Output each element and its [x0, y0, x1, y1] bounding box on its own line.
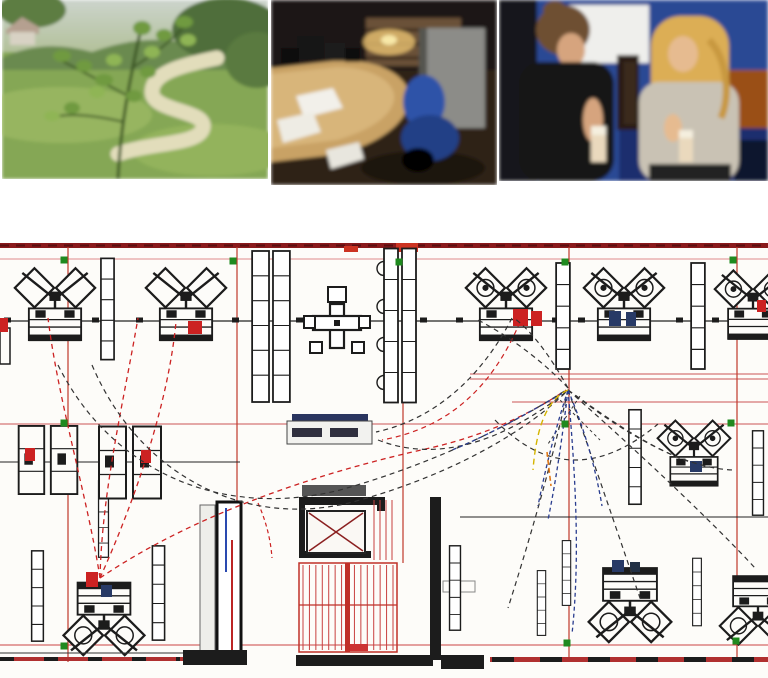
cabinet-bank — [450, 546, 461, 630]
spine-tick — [92, 318, 99, 323]
label-bar — [292, 414, 368, 421]
cable-red — [258, 503, 272, 558]
cable-chase — [217, 502, 241, 660]
cable-navy — [548, 390, 568, 520]
green-marker — [730, 257, 737, 264]
monitor — [297, 36, 324, 59]
red-mark — [350, 644, 368, 651]
spine-tick — [420, 318, 427, 323]
green-marker — [564, 640, 571, 647]
cabinet-bank — [32, 551, 44, 641]
bottom-wall — [441, 655, 484, 669]
green-marker — [396, 259, 403, 266]
red-symbol — [25, 448, 35, 461]
spine-tick — [712, 318, 719, 323]
spine-tick — [232, 318, 239, 323]
landscape-art — [2, 0, 268, 179]
green-marker — [61, 257, 68, 264]
cabinet-bank — [753, 431, 764, 515]
green-marker — [562, 421, 569, 428]
navy-symbol — [609, 311, 621, 326]
elevator-wall — [299, 497, 305, 557]
stair-stringer — [345, 563, 350, 652]
bottom-wall — [296, 655, 433, 666]
office-interior-photo — [271, 0, 497, 185]
cabinet-bank — [537, 571, 545, 636]
red-symbol — [531, 311, 542, 326]
floor-plan — [0, 243, 768, 678]
meeting-table — [304, 287, 370, 353]
workstation-cluster — [146, 268, 226, 341]
spine-tick — [296, 318, 303, 323]
cabinet-bank — [556, 263, 570, 369]
monitor — [325, 43, 345, 61]
spine-tick — [456, 318, 463, 323]
cabinet-bank — [691, 263, 705, 369]
spine-tick — [578, 318, 585, 323]
cabinet-bank — [629, 410, 641, 505]
cabinet-bank — [101, 258, 114, 359]
spine-tick — [676, 318, 683, 323]
red-symbol — [513, 309, 528, 326]
women-art — [499, 0, 768, 181]
floor-plan-content — [0, 243, 768, 669]
elevator-wall — [299, 497, 385, 505]
two-women-talking-photo — [499, 0, 768, 181]
label-text-smudge — [330, 428, 358, 437]
red-mark — [344, 246, 358, 252]
label-text-smudge — [292, 428, 322, 437]
cable-navy — [538, 390, 568, 506]
cabinet-bank-double — [252, 251, 290, 402]
navy-symbol — [626, 312, 636, 326]
workstation-cluster — [584, 268, 664, 341]
cabinet-bank — [562, 541, 570, 606]
red-symbol — [757, 300, 766, 312]
elevator-wall — [377, 497, 385, 511]
riser-gray — [200, 505, 215, 658]
green-marker — [733, 638, 740, 645]
green-marker — [230, 258, 237, 265]
corridor-wall — [430, 497, 441, 660]
red-symbol — [86, 572, 98, 587]
green-marker — [728, 420, 735, 427]
cable-navy — [452, 390, 568, 450]
green-marker — [61, 420, 68, 427]
cabinet-bank — [693, 558, 702, 626]
woman-right — [639, 16, 739, 181]
spine-tick — [136, 318, 143, 323]
workstation-cluster-down — [720, 576, 768, 644]
cable-orange — [547, 452, 551, 486]
bench-bank-chairs — [377, 249, 416, 403]
green-marker — [562, 259, 569, 266]
bottom-red-band — [490, 657, 768, 662]
navy-symbol — [101, 585, 112, 597]
office-art — [271, 0, 497, 185]
wall-hatched — [302, 485, 366, 496]
landscape-path-photo — [2, 0, 268, 179]
workstation-cluster — [15, 268, 95, 341]
red-symbol — [188, 321, 202, 334]
cabinet-bank — [152, 546, 164, 640]
bottom-wall — [183, 650, 247, 665]
red-symbol — [0, 318, 8, 332]
navy-symbol — [630, 562, 640, 572]
workstation-cluster-down — [589, 568, 672, 642]
wall-stub — [0, 328, 10, 364]
navy-symbol — [612, 560, 624, 572]
green-marker — [61, 643, 68, 650]
